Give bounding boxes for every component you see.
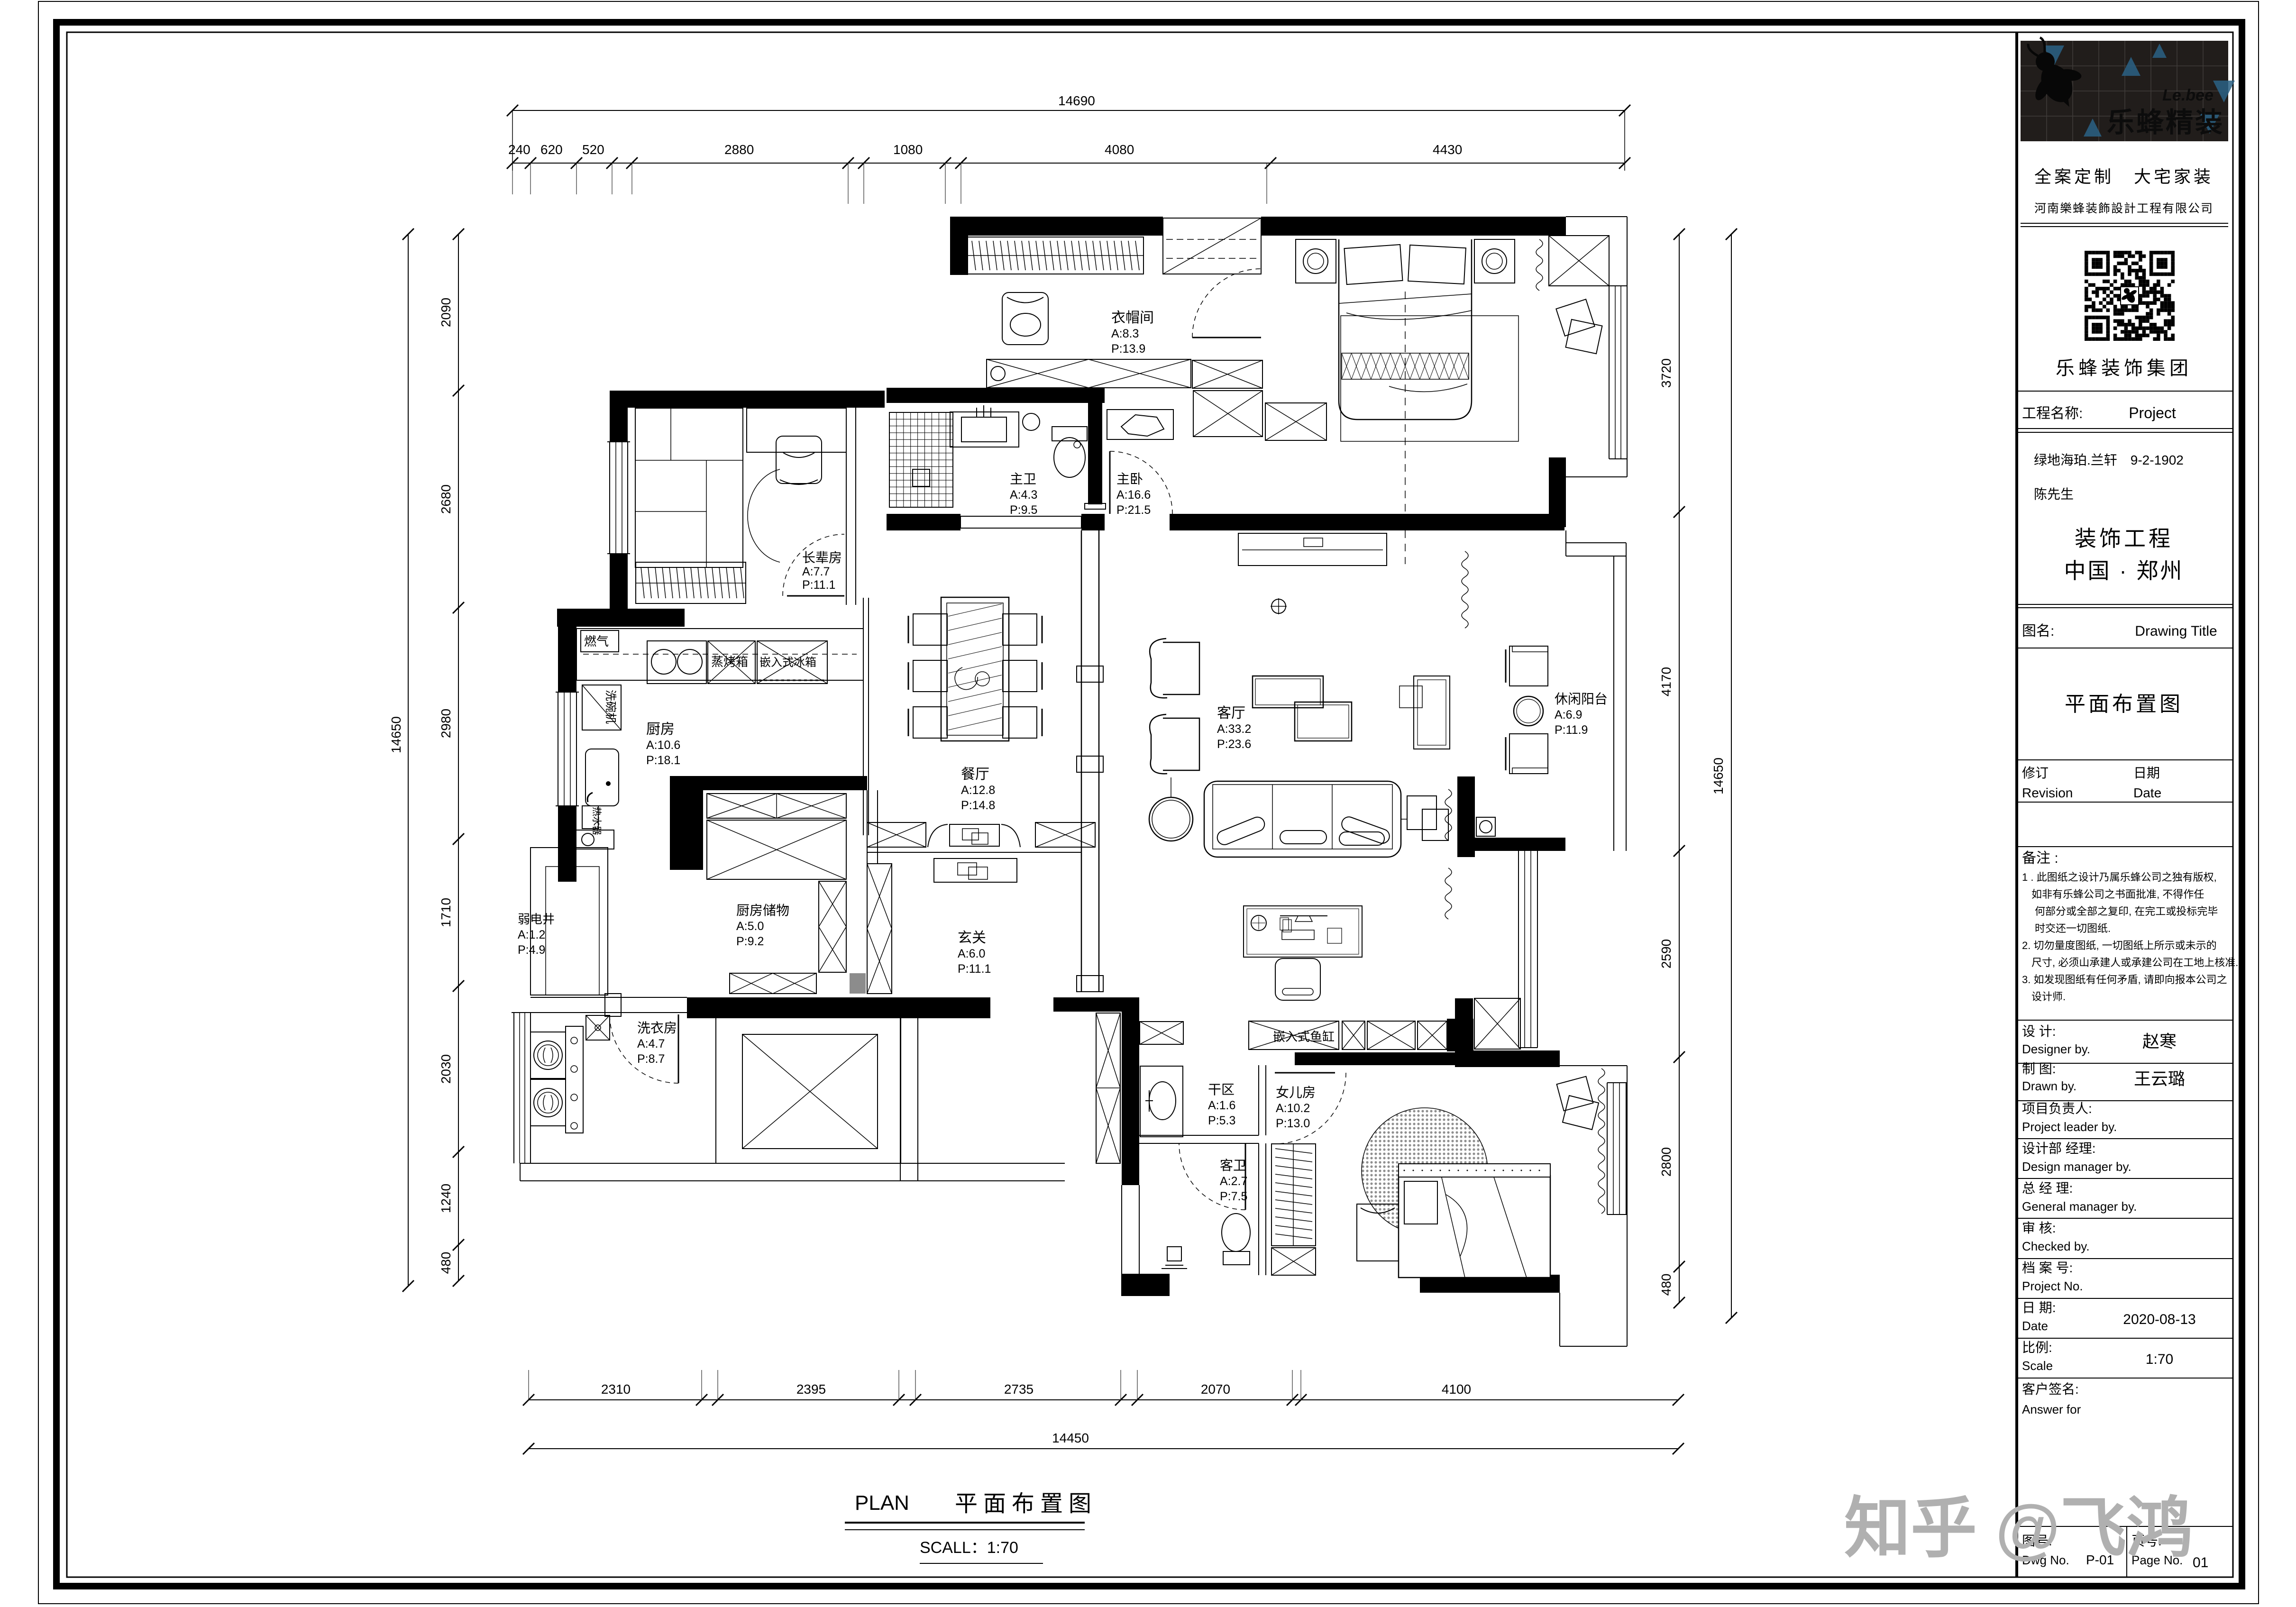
svg-text:2735: 2735 [1004, 1382, 1034, 1397]
svg-text:项目负责人:: 项目负责人: [2022, 1101, 2092, 1116]
svg-text:Designer by.: Designer by. [2022, 1042, 2090, 1056]
svg-text:备注 :: 备注 : [2022, 850, 2058, 866]
svg-text:A:5.0: A:5.0 [736, 920, 764, 933]
svg-text:A:7.7: A:7.7 [802, 565, 830, 578]
svg-text:燃气: 燃气 [584, 634, 609, 648]
svg-text:厨房储物: 厨房储物 [736, 903, 789, 918]
svg-text:P:13.9: P:13.9 [1111, 342, 1145, 356]
svg-text:A:12.8: A:12.8 [961, 784, 995, 797]
svg-text:平面布置图: 平面布置图 [2065, 693, 2183, 716]
svg-text:A:10.6: A:10.6 [646, 739, 680, 752]
svg-text:A:6.9: A:6.9 [1555, 708, 1582, 721]
svg-text:1080: 1080 [893, 142, 923, 157]
svg-text:A:1.2: A:1.2 [518, 928, 545, 941]
svg-text:P:9.5: P:9.5 [1010, 503, 1037, 517]
svg-text:P:11.1: P:11.1 [958, 962, 991, 976]
svg-text:A:33.2: A:33.2 [1217, 722, 1251, 736]
svg-text:尺寸, 必须山承建人或承建公司在工地上核准.: 尺寸, 必须山承建人或承建公司在工地上核准. [2031, 957, 2238, 968]
svg-text:1240: 1240 [439, 1184, 453, 1213]
svg-text:主卧: 主卧 [1116, 472, 1143, 486]
svg-text:A:10.2: A:10.2 [1276, 1102, 1310, 1115]
svg-text:General manager by.: General manager by. [2022, 1199, 2137, 1214]
svg-text:P:14.8: P:14.8 [961, 799, 995, 812]
svg-text:玄关: 玄关 [958, 930, 986, 946]
svg-text:知乎 @飞鸿: 知乎 @飞鸿 [1844, 1491, 2193, 1565]
svg-text:弱电井: 弱电井 [518, 912, 555, 926]
svg-text:14650: 14650 [1711, 758, 1726, 794]
svg-text:4100: 4100 [1442, 1382, 1471, 1397]
svg-text:总 经 理:: 总 经 理: [2022, 1181, 2073, 1196]
svg-text:客厅: 客厅 [1217, 705, 1245, 721]
svg-text:Scale: Scale [2022, 1359, 2053, 1373]
svg-text:平面布置图: 平面布置图 [955, 1491, 1097, 1516]
svg-text:赵寒: 赵寒 [2142, 1032, 2177, 1051]
svg-text:4080: 4080 [1105, 142, 1134, 157]
svg-text:1710: 1710 [439, 898, 453, 927]
svg-text:240: 240 [508, 142, 531, 157]
svg-text:14450: 14450 [1052, 1431, 1089, 1445]
svg-text:3. 如发现图纸有任何矛盾, 请即向报本公司之: 3. 如发现图纸有任何矛盾, 请即向报本公司之 [2022, 974, 2227, 986]
svg-text:1 . 此图纸之设计乃属乐蜂公司之独有版权,: 1 . 此图纸之设计乃属乐蜂公司之独有版权, [2022, 871, 2217, 883]
svg-text:P:5.3: P:5.3 [1208, 1114, 1235, 1127]
svg-text:2395: 2395 [796, 1382, 826, 1397]
svg-text:时交还一切图纸.: 时交还一切图纸. [2035, 922, 2111, 934]
svg-text:PLAN: PLAN [855, 1491, 909, 1515]
svg-text:2070: 2070 [1201, 1382, 1230, 1397]
svg-text:衣帽间: 衣帽间 [1111, 310, 1154, 326]
svg-text:P:21.5: P:21.5 [1116, 503, 1151, 517]
svg-text:Project leader by.: Project leader by. [2022, 1120, 2117, 1134]
svg-text:14650: 14650 [389, 716, 403, 753]
svg-text:乐蜂装饰集团: 乐蜂装饰集团 [2056, 358, 2192, 379]
svg-text:P:23.6: P:23.6 [1217, 738, 1251, 751]
svg-text:制 图:: 制 图: [2022, 1061, 2056, 1076]
svg-text:2310: 2310 [601, 1382, 631, 1397]
svg-text:P:9.2: P:9.2 [736, 935, 764, 948]
svg-text:蒸烤箱: 蒸烤箱 [711, 655, 748, 669]
svg-text:14690: 14690 [1058, 93, 1095, 108]
svg-text:嵌入式冰箱: 嵌入式冰箱 [759, 656, 816, 669]
svg-text:2980: 2980 [439, 709, 453, 738]
svg-text:P:4.9: P:4.9 [518, 943, 545, 957]
svg-text:2. 切勿量度图纸, 一切图纸上所示或未示的: 2. 切勿量度图纸, 一切图纸上所示或未示的 [2022, 940, 2217, 951]
svg-text:比例:: 比例: [2022, 1340, 2052, 1355]
svg-text:工程名称:: 工程名称: [2022, 406, 2083, 421]
svg-text:设 计:: 设 计: [2022, 1024, 2056, 1039]
svg-text:如非有乐蜂公司之书面批准, 不得作任: 如非有乐蜂公司之书面批准, 不得作任 [2031, 888, 2204, 900]
svg-text:女儿房: 女儿房 [1276, 1085, 1316, 1100]
svg-text:厨房: 厨房 [646, 721, 675, 737]
svg-text:P:8.7: P:8.7 [637, 1052, 665, 1066]
svg-text:A:4.3: A:4.3 [1010, 488, 1037, 502]
svg-text:Drawing Title: Drawing Title [2135, 623, 2217, 639]
svg-text:SCALL：1:70: SCALL：1:70 [920, 1539, 1018, 1557]
svg-text:客户签名:: 客户签名: [2022, 1382, 2079, 1397]
svg-text:餐厅: 餐厅 [961, 767, 989, 782]
svg-text:2030: 2030 [439, 1054, 453, 1084]
svg-text:河南樂蜂装飾設計工程有限公司: 河南樂蜂装飾設計工程有限公司 [2034, 202, 2214, 215]
svg-text:A:2.7: A:2.7 [1220, 1175, 1247, 1188]
svg-text:主卫: 主卫 [1010, 472, 1036, 486]
svg-text:P:11.9: P:11.9 [1555, 723, 1588, 737]
svg-text:1:70: 1:70 [2146, 1351, 2173, 1367]
svg-text:P:7.5: P:7.5 [1220, 1190, 1247, 1203]
svg-text:设计部 经理:: 设计部 经理: [2022, 1141, 2096, 1156]
svg-text:A:8.3: A:8.3 [1111, 327, 1139, 340]
svg-text:客卫: 客卫 [1220, 1158, 1246, 1173]
svg-text:Date: Date [2022, 1319, 2048, 1333]
svg-text:P:11.1: P:11.1 [802, 578, 835, 592]
svg-text:Drawn by.: Drawn by. [2022, 1079, 2076, 1093]
svg-text:热水器: 热水器 [591, 807, 602, 835]
svg-text:休闲阳台: 休闲阳台 [1555, 692, 1608, 706]
svg-text:日 期:: 日 期: [2022, 1300, 2056, 1315]
svg-text:P:13.0: P:13.0 [1276, 1117, 1310, 1130]
svg-text:装饰工程: 装饰工程 [2075, 526, 2173, 551]
svg-text:Project No.: Project No. [2022, 1279, 2083, 1293]
svg-text:480: 480 [1659, 1274, 1674, 1296]
svg-text:陈先生: 陈先生 [2034, 487, 2074, 502]
svg-text:洗碗机: 洗碗机 [604, 690, 617, 724]
svg-text:2020-08-13: 2020-08-13 [2123, 1312, 2195, 1327]
svg-text:嵌入式鱼缸: 嵌入式鱼缸 [1273, 1030, 1335, 1044]
svg-text:Date: Date [2133, 785, 2161, 800]
svg-text:日期: 日期 [2133, 766, 2160, 780]
svg-text:王云璐: 王云璐 [2134, 1069, 2185, 1088]
svg-text:A:4.7: A:4.7 [637, 1037, 665, 1050]
svg-text:4170: 4170 [1659, 667, 1674, 696]
svg-text:Design manager by.: Design manager by. [2022, 1160, 2131, 1174]
svg-text:Revision: Revision [2022, 785, 2073, 800]
svg-text:480: 480 [439, 1252, 453, 1274]
svg-text:2090: 2090 [439, 298, 453, 327]
svg-text:长辈房: 长辈房 [802, 550, 842, 565]
svg-text:Checked by.: Checked by. [2022, 1239, 2090, 1253]
svg-text:Project: Project [2129, 404, 2176, 421]
svg-text:绿地海珀.兰轩 9-2-1902: 绿地海珀.兰轩 9-2-1902 [2034, 453, 2184, 467]
svg-text:A:16.6: A:16.6 [1116, 488, 1151, 502]
svg-text:Le.bee: Le.bee [2162, 86, 2214, 104]
svg-text:何部分或全部之复印, 在完工或投标完毕: 何部分或全部之复印, 在完工或投标完毕 [2035, 905, 2218, 917]
svg-text:中国 · 郑州: 中国 · 郑州 [2064, 558, 2184, 583]
svg-text:审 核:: 审 核: [2022, 1221, 2056, 1235]
svg-text:P:18.1: P:18.1 [646, 754, 680, 767]
svg-text:乐蜂精装: 乐蜂精装 [2107, 107, 2224, 138]
svg-text:2590: 2590 [1659, 939, 1674, 968]
svg-text:2680: 2680 [439, 484, 453, 514]
svg-text:设计师.: 设计师. [2031, 991, 2066, 1003]
svg-text:2880: 2880 [724, 142, 754, 157]
svg-text:干区: 干区 [1208, 1082, 1235, 1097]
svg-text:2800: 2800 [1659, 1147, 1674, 1177]
svg-text:修订: 修订 [2022, 766, 2049, 780]
svg-text:3720: 3720 [1659, 358, 1674, 388]
svg-text:档 案 号:: 档 案 号: [2022, 1260, 2073, 1275]
svg-text:全案定制 大宅家装: 全案定制 大宅家装 [2034, 167, 2214, 186]
svg-text:4430: 4430 [1433, 142, 1462, 157]
svg-text:A:1.6: A:1.6 [1208, 1099, 1235, 1112]
svg-text:01: 01 [2193, 1555, 2208, 1570]
svg-text:A:6.0: A:6.0 [958, 947, 985, 960]
svg-text:Answer for: Answer for [2022, 1402, 2081, 1416]
svg-text:520: 520 [582, 142, 604, 157]
svg-text:图名:: 图名: [2022, 623, 2054, 639]
svg-text:620: 620 [540, 142, 563, 157]
svg-text:洗衣房: 洗衣房 [637, 1021, 677, 1035]
